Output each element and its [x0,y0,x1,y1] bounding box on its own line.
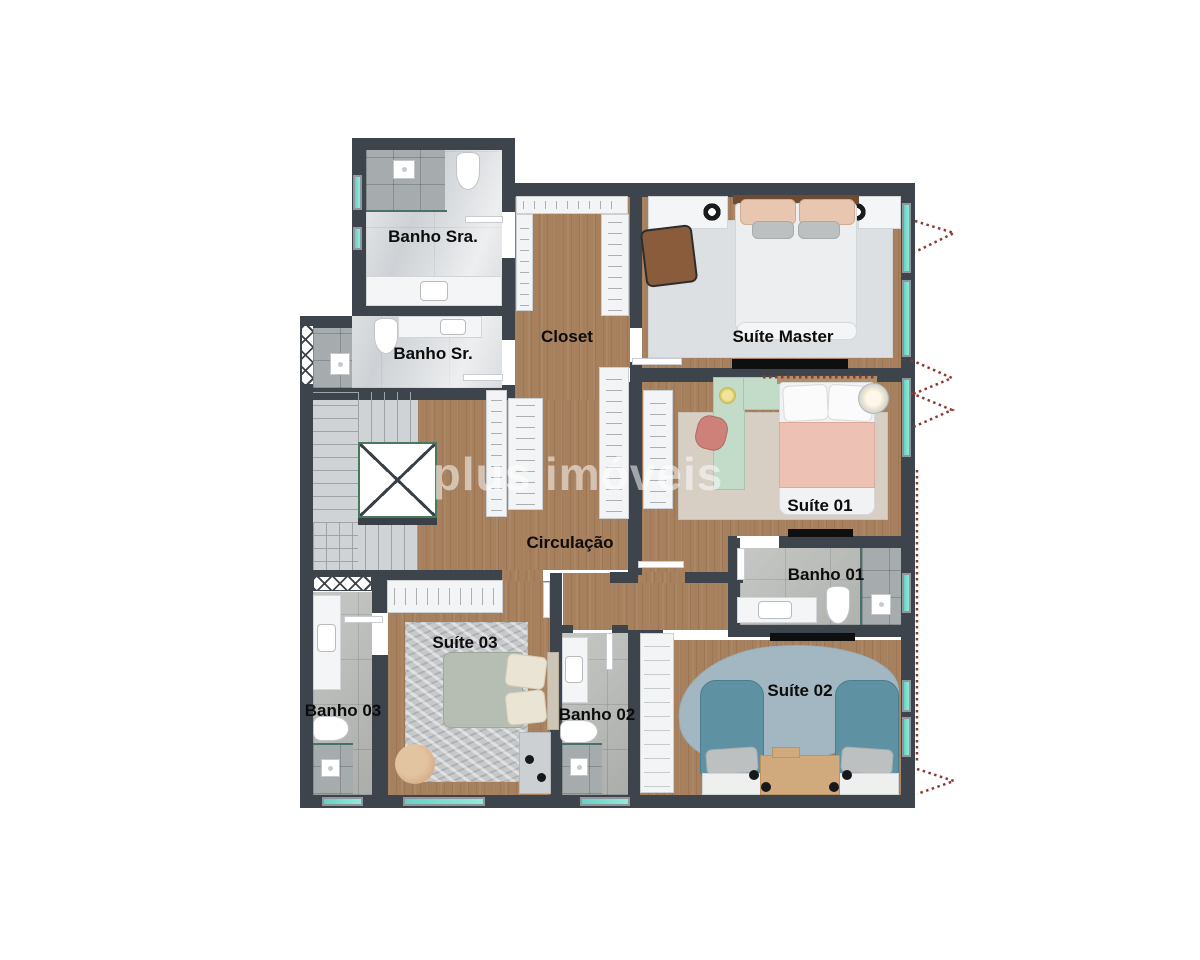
tv-suite-01 [788,529,853,537]
label-banho-sr: Banho Sr. [393,344,472,364]
shower-glass-banho-01 [860,548,862,625]
label-suite-master: Suíte Master [732,327,833,347]
label-banho-03: Banho 03 [305,701,382,721]
door-leaf-banho-03 [344,616,383,623]
door-leaf-banho-sra [465,216,503,223]
label-closet: Closet [541,327,593,347]
pillow-master-gray-right [798,221,840,239]
window-suite-02-a [902,680,911,712]
wardrobe-closet-left [516,214,533,311]
door-leaf-suite-03 [543,582,550,618]
label-banho-01: Banho 01 [788,565,865,585]
bed-suite-01-duvet [779,422,875,488]
wall-banho02-top-b [612,625,628,633]
wall-banho01-top-a [728,536,737,548]
window-suite-02-b [902,717,911,757]
toilet-banho-01 [826,586,850,624]
label-suite-01: Suíte 01 [787,496,852,516]
door-gap-banho-sra [502,212,515,258]
sink-banho-01 [758,601,792,619]
pillow-master-gray-left [752,221,794,239]
sink-banho-03 [317,624,336,652]
stairs-bottom-flight [313,523,418,570]
window-banho-sra-a [353,175,362,210]
sink-banho-sr [440,319,466,335]
headboard-suite-03 [547,652,559,730]
door-leaf-suite-01 [638,561,684,568]
window-banho-01 [902,573,911,613]
door-leaf-suite-master [632,358,682,365]
chair-dot-suite02-c [842,770,852,780]
shower-fixture-banho-sra [393,160,415,179]
wall-banho03-suite03-b [372,655,388,795]
view-arrow-icon-mid-b [911,393,952,428]
chair-dot-suite02-b [761,782,771,792]
chair-suite-03 [395,744,435,784]
floor-corridor-east [610,583,728,630]
window-suite-master-b [902,280,911,357]
floor-suite01-door-gap [638,572,685,583]
wall-circ-s01-bottom-a [610,572,638,583]
window-banho-02-bottom [580,797,630,806]
wardrobe-closet-top [516,196,628,214]
shower-fixture-banho-03 [321,759,340,777]
window-banho-03-bottom [322,797,363,806]
label-suite-02: Suíte 02 [767,681,832,701]
label-banho-02: Banho 02 [559,705,636,725]
window-suite-01 [902,378,911,457]
stairs-top-flight [358,392,418,442]
lamp-suite-01 [858,383,889,414]
view-arrow-icon-bottom [917,769,954,794]
door-gap-banho-sr [502,340,515,385]
wardrobe-closet-right [601,214,629,316]
watermark-text: plus imóveis [433,447,724,501]
floor-corridor-down [563,573,610,630]
tv-suite-02 [770,633,855,641]
sink-banho-02 [565,656,583,683]
door-leaf-banho-01 [737,548,745,580]
wall-top-banho-sra [352,138,515,150]
window-suite-03-bottom [403,797,485,806]
lamp-desk-suite-01 [719,387,736,404]
door-leaf-banho-sr [463,374,503,381]
wall-banho01-top-b [779,536,903,548]
wall-banho03-suite03-a [372,570,388,613]
toilet-banho-sra [456,152,480,190]
partition-banho03-hatch [313,576,372,591]
desk-suite-02 [760,755,840,795]
wall-right-exterior [901,183,915,808]
lamp-master-left [703,203,721,221]
floor-plan: Banho Sra. Banho Sr. Closet Suíte Master… [0,0,1200,960]
label-suite-03: Suíte 03 [432,633,497,653]
door-leaf-banho-02 [606,633,613,670]
window-banho-sra-b [353,227,362,250]
label-circulacao: Circulação [527,533,614,553]
decor-dot-suite03-b [537,773,546,782]
chair-dot-suite02-d [829,782,839,792]
window-suite-master-a [902,203,911,273]
shower-glass-banho-sra [366,210,447,212]
wardrobe-suite-03 [387,580,503,613]
view-arrow-icon-mid-a [911,360,952,395]
pillow-suite01-left [782,384,829,422]
wardrobe-suite-02 [640,633,674,793]
armchair-master [640,224,699,288]
pillow-suite03-top [504,653,548,691]
shower-fixture-banho-01 [871,594,891,615]
pillow-suite03-bottom [504,689,547,726]
shower-glass-banho-03 [313,743,353,745]
wall-banho02-top-a [550,625,573,633]
decor-dot-suite03-a [525,755,534,764]
label-banho-sra: Banho Sra. [388,227,478,247]
wall-closet-master [630,183,642,328]
sink-banho-sra [420,281,448,301]
tv-suite-master [732,359,848,369]
shower-fixture-banho-02 [570,758,588,776]
stair-void-x [358,442,437,518]
bench-suite-03 [519,732,551,794]
shower-glass-banho-02 [562,743,602,745]
desk-suite-02-notch [772,747,800,758]
view-arrow-icon-top [915,221,954,252]
shower-fixture-banho-sr [330,353,350,375]
chair-dot-suite02-a [749,770,759,780]
